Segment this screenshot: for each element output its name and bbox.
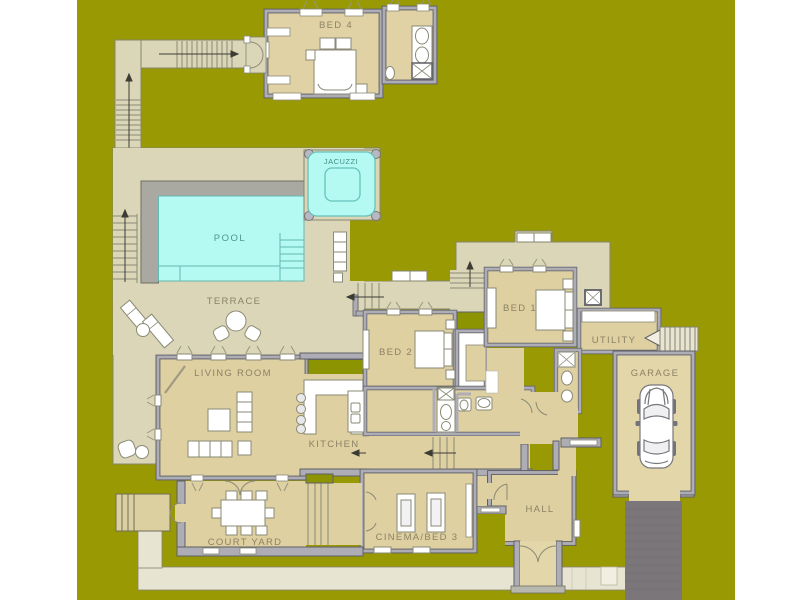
svg-text:BED 4: BED 4 <box>319 20 353 31</box>
svg-text:CINEMA/BED 3: CINEMA/BED 3 <box>376 532 459 543</box>
svg-text:UTILITY: UTILITY <box>592 335 636 346</box>
svg-text:HALL: HALL <box>526 504 555 515</box>
svg-text:LIVING ROOM: LIVING ROOM <box>194 368 272 379</box>
svg-text:JACUZZI: JACUZZI <box>324 157 358 166</box>
svg-text:KITCHEN: KITCHEN <box>309 439 360 450</box>
svg-text:BED 2: BED 2 <box>379 347 413 358</box>
svg-text:TERRACE: TERRACE <box>207 296 262 307</box>
svg-text:GARAGE: GARAGE <box>631 368 679 379</box>
svg-text:COURT YARD: COURT YARD <box>208 537 283 548</box>
svg-text:POOL: POOL <box>214 233 246 244</box>
svg-text:BED 1: BED 1 <box>503 303 537 314</box>
